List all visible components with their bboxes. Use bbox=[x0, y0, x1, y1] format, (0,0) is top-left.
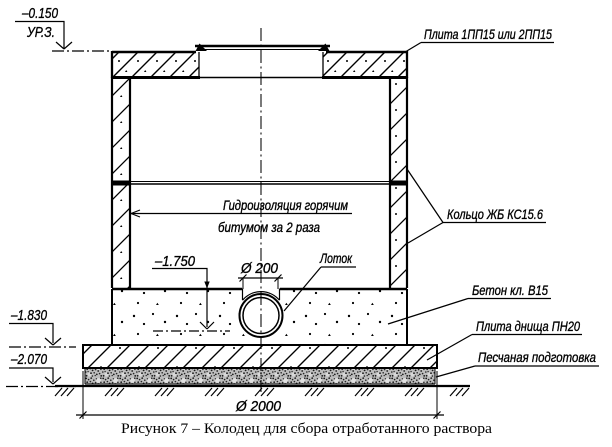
svg-text:–0.150: –0.150 bbox=[21, 5, 58, 22]
svg-text:Песчаная подготовка: Песчаная подготовка bbox=[478, 349, 596, 365]
svg-text:–2.070: –2.070 bbox=[10, 351, 47, 368]
svg-text:–1.830: –1.830 bbox=[10, 307, 47, 324]
svg-text:УР.З.: УР.З. bbox=[26, 24, 55, 41]
svg-text:битумом за 2 раза: битумом за 2 раза bbox=[218, 219, 320, 235]
svg-text:Кольцо ЖБ КС15.6: Кольцо ЖБ КС15.6 bbox=[447, 206, 543, 222]
svg-text:Рисунок 7 – Колодец для сбора: Рисунок 7 – Колодец для сбора отработанн… bbox=[121, 421, 493, 437]
svg-text:–1.750: –1.750 bbox=[154, 253, 195, 270]
svg-text:Бетон кл. В15: Бетон кл. В15 bbox=[472, 282, 548, 298]
svg-text:Плита днища ПН20: Плита днища ПН20 bbox=[476, 318, 580, 334]
svg-text:Плита 1ПП15 или 2ПП15: Плита 1ПП15 или 2ПП15 bbox=[424, 26, 552, 42]
svg-text:Лоток: Лоток bbox=[319, 250, 353, 266]
svg-text:Гидроизоляция горячим: Гидроизоляция горячим bbox=[223, 197, 348, 213]
svg-text:Ø 2000: Ø 2000 bbox=[235, 398, 282, 415]
